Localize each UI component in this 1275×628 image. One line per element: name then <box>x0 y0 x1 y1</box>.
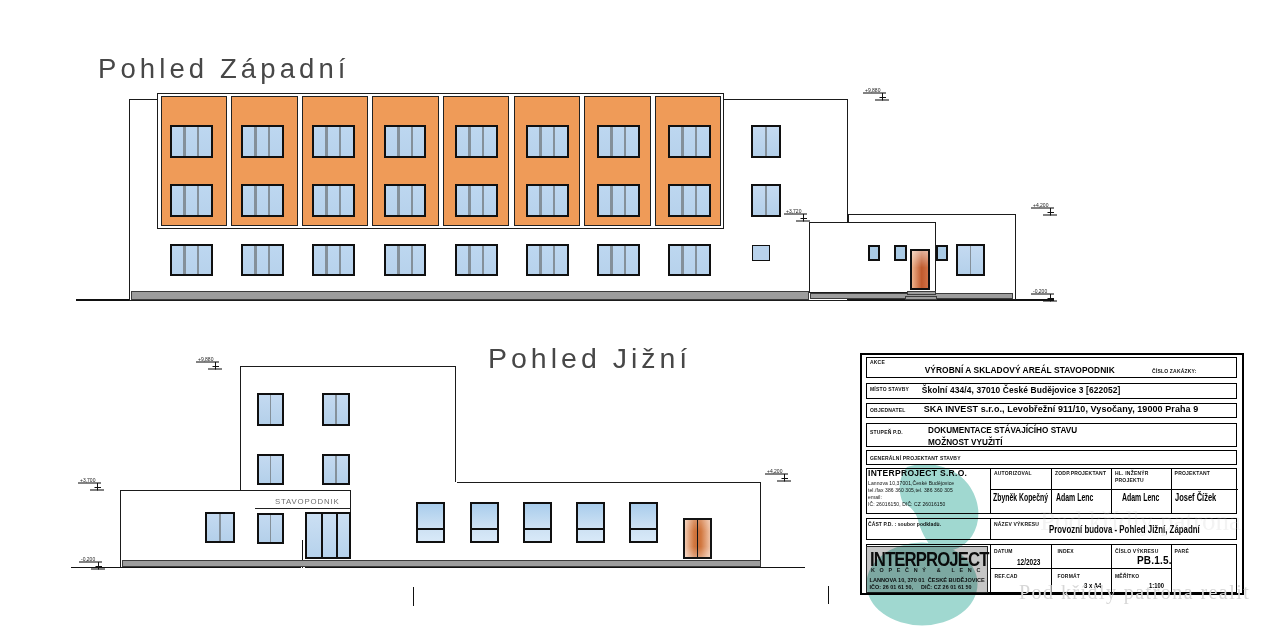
svg-text:+4,200: +4,200 <box>1033 202 1049 208</box>
svg-text:+3,720: +3,720 <box>786 208 802 214</box>
svg-text:+4,200: +4,200 <box>767 468 783 474</box>
svg-text:+9,880: +9,880 <box>198 356 214 362</box>
svg-text:-0,200: -0,200 <box>1033 288 1047 294</box>
svg-text:-0,200: -0,200 <box>81 555 95 561</box>
svg-text:+9,880: +9,880 <box>865 86 881 92</box>
svg-text:+3,700: +3,700 <box>80 476 96 482</box>
